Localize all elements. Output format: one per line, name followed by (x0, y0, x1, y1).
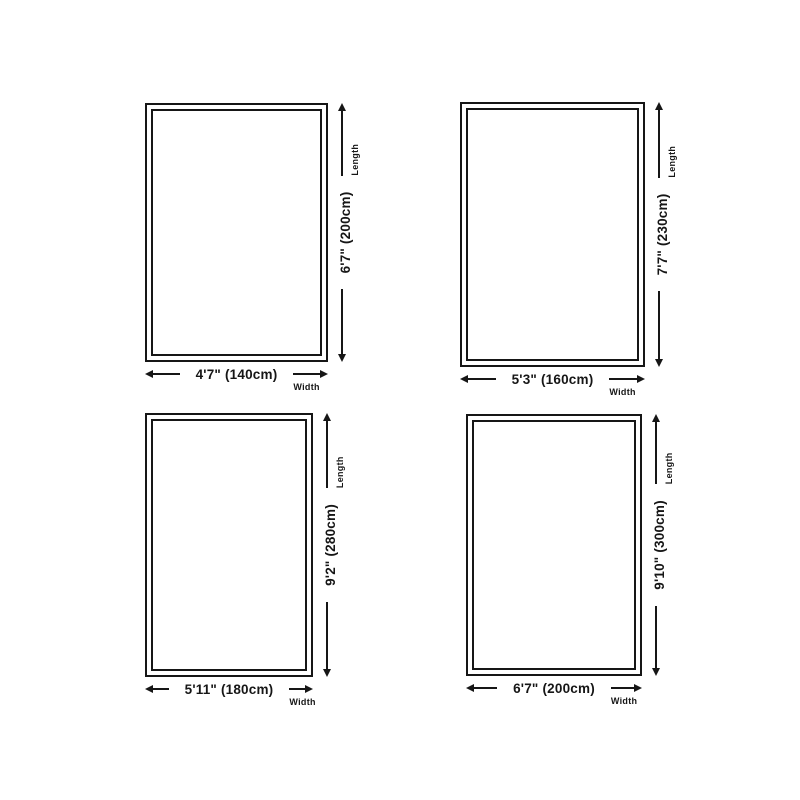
dimension-line (460, 375, 496, 383)
length-value: 9'2" (280cm) (323, 504, 338, 586)
rug-outline (145, 103, 328, 362)
rug-inner-border (151, 109, 322, 356)
length-dimension-annotation: 6'7" (200cm) Length (334, 103, 350, 362)
dimension-line (145, 370, 180, 378)
dimension-line (145, 685, 169, 693)
arrow-up-icon (652, 414, 660, 422)
length-axis-label: Length (667, 146, 677, 178)
dimension-line (326, 421, 328, 488)
arrow-right-icon (637, 375, 645, 383)
dimension-line (658, 110, 660, 178)
arrow-down-icon (652, 668, 660, 676)
dimension-line (326, 602, 328, 669)
dimension-line (468, 378, 496, 380)
dimension-line: Width (609, 375, 645, 383)
dimension-line: Width (293, 370, 328, 378)
dimension-line: Length (338, 103, 346, 176)
width-value: 5'11" (180cm) (185, 682, 274, 697)
arrow-left-icon (466, 684, 474, 692)
width-axis-label: Width (293, 382, 319, 392)
dimension-line (655, 422, 657, 484)
length-value: 7'7" (230cm) (655, 194, 670, 276)
length-dimension-annotation: 9'10" (300cm) Length (648, 414, 664, 676)
arrow-left-icon (145, 685, 153, 693)
arrow-up-icon (323, 413, 331, 421)
rug-inner-border (466, 108, 639, 361)
dimension-line (341, 289, 343, 354)
dimension-line (323, 602, 331, 677)
dimension-line (153, 373, 180, 375)
length-value: 6'7" (200cm) (338, 192, 353, 274)
dimension-line (338, 289, 346, 362)
rug-size-chart: 6'7" (200cm) Length 4'7" (140cm) Width (0, 0, 800, 800)
arrow-left-icon (460, 375, 468, 383)
rug-outline (460, 102, 645, 367)
arrow-up-icon (338, 103, 346, 111)
rug-inner-border (472, 420, 636, 670)
dimension-line: Width (289, 685, 313, 693)
dimension-line (474, 687, 497, 689)
dimension-line (293, 373, 320, 375)
arrow-left-icon (145, 370, 153, 378)
length-dimension-annotation: 7'7" (230cm) Length (651, 102, 667, 367)
length-value: 9'10" (300cm) (652, 500, 667, 590)
dimension-line (153, 688, 169, 690)
dimension-line (611, 687, 634, 689)
width-axis-label: Width (289, 697, 315, 707)
dimension-line (658, 291, 660, 359)
dimension-line (652, 606, 660, 676)
length-axis-label: Length (350, 144, 360, 176)
width-value: 4'7" (140cm) (196, 367, 278, 382)
width-axis-label: Width (611, 696, 637, 706)
width-axis-label: Width (609, 387, 635, 397)
rug-inner-border (151, 419, 307, 671)
dimension-line (466, 684, 497, 692)
width-dimension-annotation: 5'3" (160cm) Width (460, 371, 645, 387)
width-dimension-annotation: 6'7" (200cm) Width (466, 680, 642, 696)
length-axis-label: Length (664, 452, 674, 484)
rug-outline (145, 413, 313, 677)
dimension-line (655, 606, 657, 668)
dimension-line: Length (652, 414, 660, 484)
arrow-up-icon (655, 102, 663, 110)
width-value: 5'3" (160cm) (512, 372, 594, 387)
dimension-line (609, 378, 637, 380)
dimension-line: Length (323, 413, 331, 488)
dimension-line: Width (611, 684, 642, 692)
rug-outline (466, 414, 642, 676)
length-axis-label: Length (335, 456, 345, 488)
arrow-down-icon (323, 669, 331, 677)
length-dimension-annotation: 9'2" (280cm) Length (319, 413, 335, 677)
width-dimension-annotation: 5'11" (180cm) Width (145, 681, 313, 697)
dimension-line: Length (655, 102, 663, 178)
dimension-line (341, 111, 343, 176)
dimension-line (289, 688, 305, 690)
arrow-right-icon (320, 370, 328, 378)
width-value: 6'7" (200cm) (513, 681, 595, 696)
arrow-down-icon (338, 354, 346, 362)
arrow-right-icon (305, 685, 313, 693)
width-dimension-annotation: 4'7" (140cm) Width (145, 366, 328, 382)
arrow-right-icon (634, 684, 642, 692)
arrow-down-icon (655, 359, 663, 367)
dimension-line (655, 291, 663, 367)
